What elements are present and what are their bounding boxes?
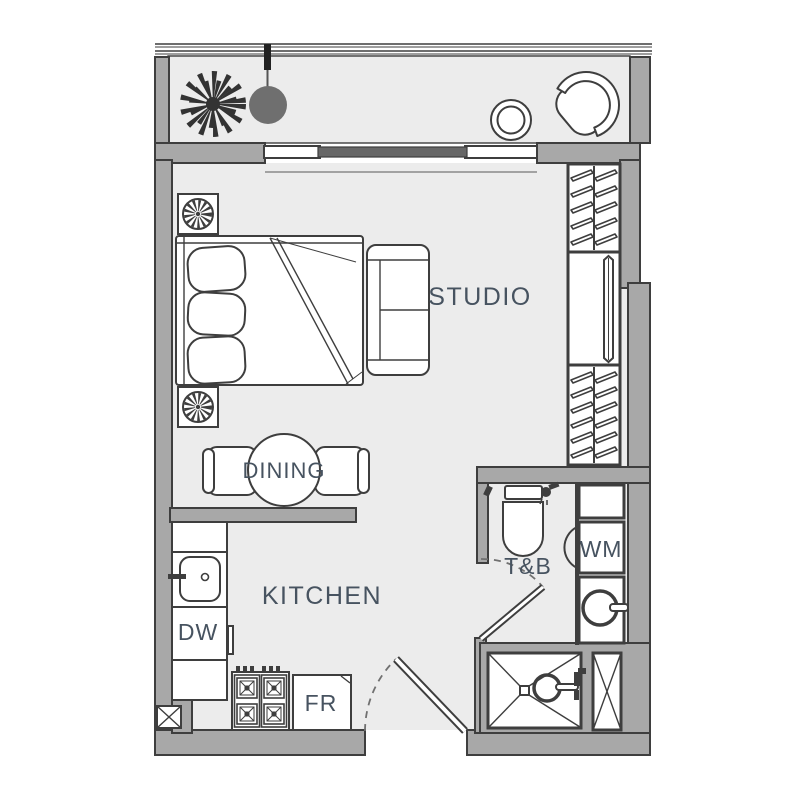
tb-top-wall <box>477 467 650 483</box>
kitchen-label: KITCHEN <box>262 582 382 610</box>
floor-plan: STUDIO <box>0 0 800 800</box>
round-stool-icon <box>491 100 531 140</box>
nightstand-bottom <box>178 387 218 427</box>
nightstand-top <box>178 194 218 234</box>
window-frame-right <box>465 146 537 158</box>
dishwasher-label: DW <box>178 619 218 645</box>
cabinet-handle <box>228 626 233 654</box>
toilet-bath-label: T&B <box>504 553 552 579</box>
shower-drain <box>520 686 529 695</box>
laundry-cabinet <box>579 485 624 518</box>
window-frame-left <box>264 146 320 158</box>
stove <box>232 666 289 730</box>
toilet <box>503 486 543 556</box>
right-wall-upper <box>620 160 640 288</box>
sliding-panel <box>318 147 467 157</box>
shower-area <box>488 653 621 730</box>
kitchen-counter: DW <box>168 522 233 700</box>
studio-label: STUDIO <box>428 283 531 311</box>
pillows <box>187 245 247 384</box>
sofa <box>367 245 429 375</box>
balcony-left-wall <box>155 57 169 143</box>
shower-pan <box>488 653 586 728</box>
service-shaft <box>157 706 181 728</box>
balcony-right-wall <box>630 57 650 143</box>
drum-handle <box>610 604 628 611</box>
dining-partition-wall <box>170 508 356 522</box>
balcony-railing <box>155 44 652 54</box>
faucet-icon <box>168 574 186 579</box>
double-bed <box>176 236 363 385</box>
duct-shaft <box>593 653 621 730</box>
left-wall <box>155 160 172 755</box>
dining-label: DINING <box>243 458 326 483</box>
washing-machine-label: WM <box>580 536 623 562</box>
floor-plan-drawing: STUDIO <box>0 0 800 800</box>
refrigerator-label: FR <box>305 690 338 716</box>
washer-drum <box>579 577 628 643</box>
wardrobe <box>568 164 620 465</box>
refrigerator: FR <box>293 675 351 730</box>
wardrobe-mirror <box>604 256 613 362</box>
